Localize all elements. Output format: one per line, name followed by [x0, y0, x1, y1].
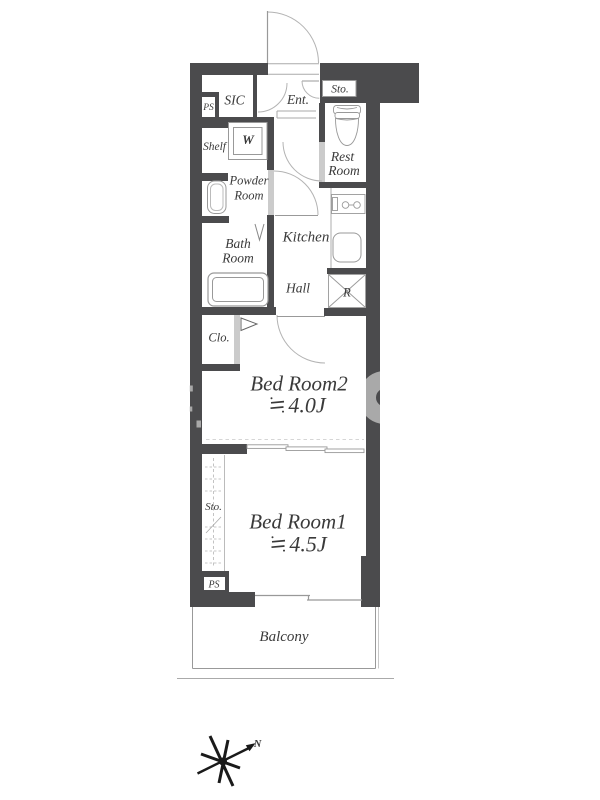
svg-text:PS: PS [202, 103, 214, 113]
svg-text:4.0J: 4.0J [288, 393, 327, 418]
svg-text:Clo.: Clo. [208, 331, 229, 345]
svg-text:4.5J: 4.5J [289, 532, 328, 557]
svg-text:Ent.: Ent. [286, 92, 309, 107]
svg-text:Sto.: Sto. [331, 84, 349, 96]
svg-text:N: N [253, 739, 262, 750]
svg-text:Kitchen: Kitchen [282, 230, 330, 246]
svg-text:Room: Room [327, 163, 360, 178]
svg-text:Rest: Rest [330, 149, 355, 164]
svg-text:Room: Room [221, 251, 254, 266]
svg-text:PS: PS [207, 580, 219, 591]
svg-text:W: W [242, 132, 255, 147]
svg-text:Shelf: Shelf [203, 141, 228, 153]
svg-text:Sto.: Sto. [205, 501, 222, 513]
svg-text:R: R [342, 286, 351, 300]
svg-text:SIC: SIC [224, 93, 245, 108]
svg-text:Balcony: Balcony [259, 629, 308, 645]
svg-text:Hall: Hall [285, 281, 310, 296]
svg-text:Bed Room1: Bed Room1 [249, 510, 346, 534]
svg-text:Room: Room [233, 189, 263, 203]
svg-text:Powder: Powder [229, 174, 269, 188]
svg-text:Bath: Bath [225, 236, 251, 251]
